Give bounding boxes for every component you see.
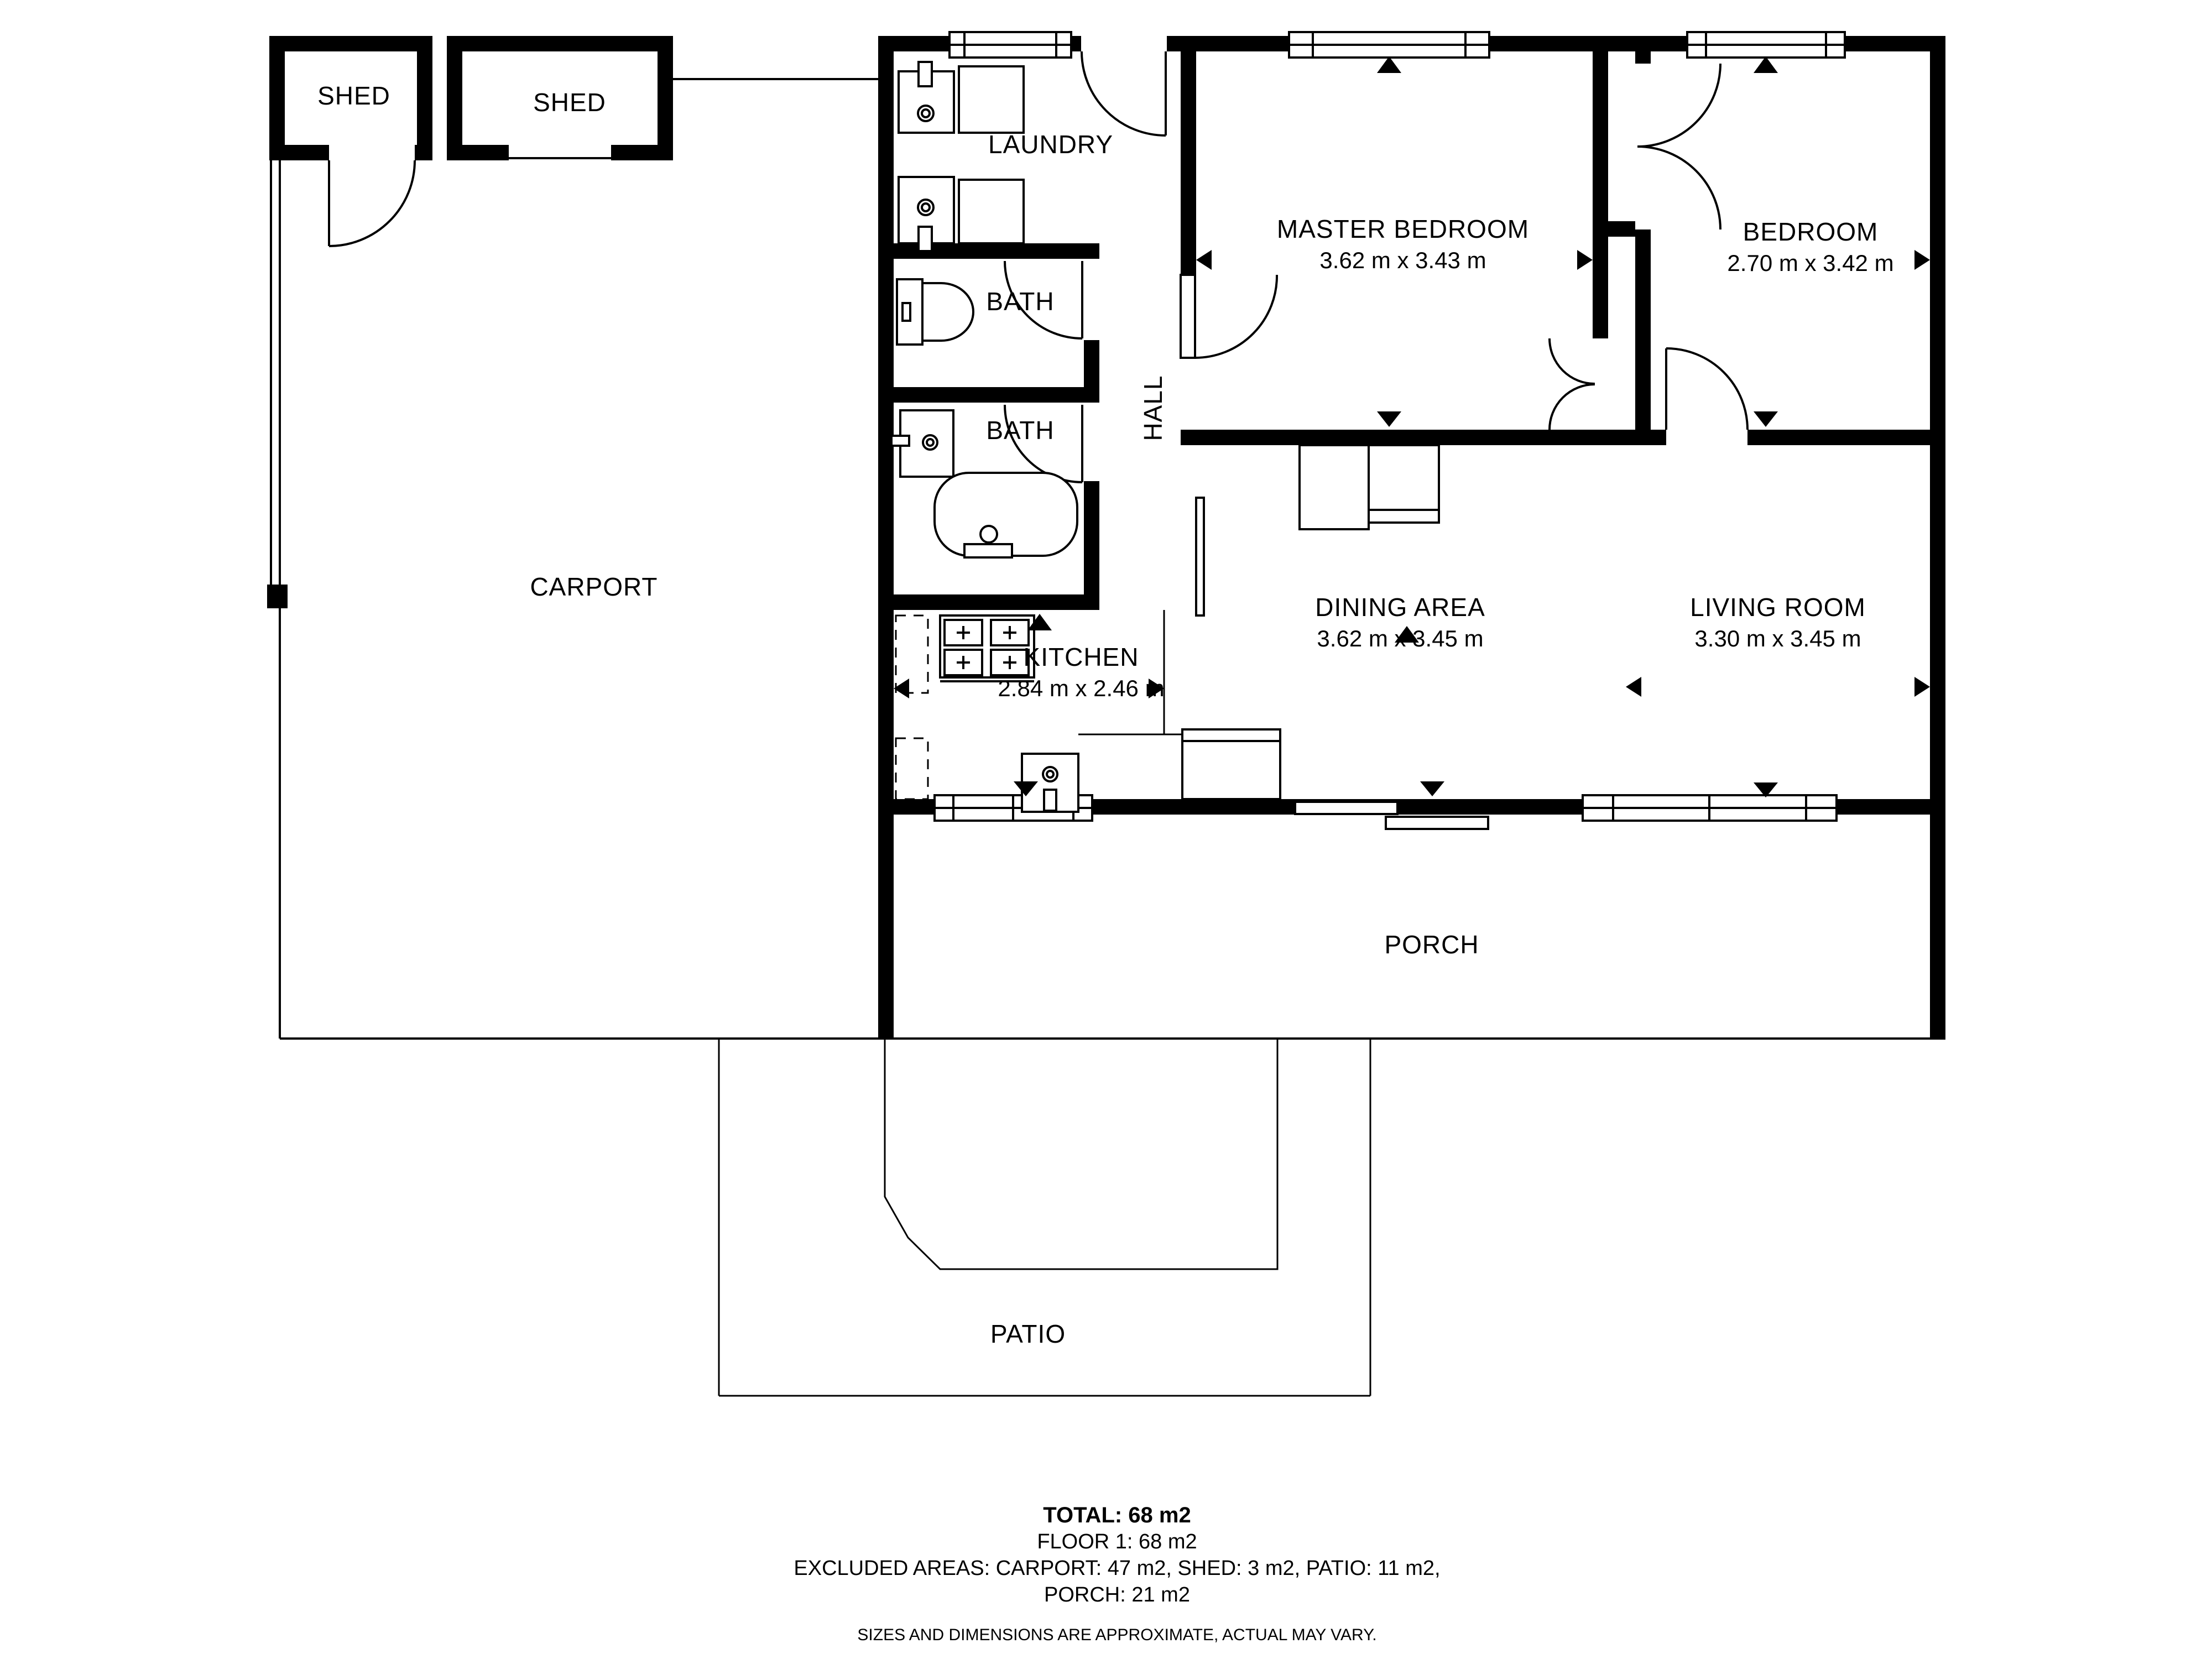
fridge-counter [1182, 729, 1280, 799]
wall-bedrooms-bottom-a [1181, 430, 1666, 445]
arrow-right-bedroom [1914, 250, 1930, 270]
wall-right [1930, 36, 1945, 1040]
label-hall: HALL [1138, 375, 1168, 441]
label-living-room: LIVING ROOM [1690, 592, 1866, 622]
arrow-down-sliding-door [1420, 781, 1444, 796]
label-master-bedroom: MASTER BEDROOM [1277, 214, 1529, 244]
label-carport: CARPORT [530, 572, 658, 602]
summary-total: TOTAL: 68 m2 [680, 1502, 1554, 1528]
shed2-wall-bottom-a [447, 145, 509, 160]
summary-floor: FLOOR 1: 68 m2 [680, 1528, 1554, 1555]
bathtub [935, 473, 1077, 557]
laundry-appliance-1 [959, 66, 1024, 133]
laundry-sink-1 [899, 62, 954, 133]
label-bedroom: BEDROOM [1743, 217, 1879, 247]
kitchen-zone-lines [1078, 610, 1182, 734]
label-shed2: SHED [533, 87, 606, 117]
door-arc-master-closet-lower [1550, 384, 1595, 430]
shed2-wall-bottom-b [611, 145, 673, 160]
dims-kitchen: 2.84 m x 2.46 m [998, 675, 1164, 702]
arrow-left-master [1196, 250, 1212, 270]
door-gap-bedroom [1666, 430, 1747, 445]
arrow-left-living [1626, 677, 1641, 697]
wall-bath2-kitchen [894, 594, 1099, 610]
shed2-wall-right [658, 36, 673, 160]
wall-left [878, 36, 894, 1040]
door-leaf-hall-open [1196, 498, 1204, 615]
disclaimer-text: SIZES AND DIMENSIONS ARE APPROXIMATE, AC… [680, 1626, 1554, 1645]
laundry-appliance-2 [959, 180, 1024, 243]
dims-dining-area: 3.62 m x 3.45 m [1317, 625, 1483, 652]
patio-pad-outline [885, 1040, 1277, 1269]
label-shed1: SHED [317, 81, 390, 111]
wall-bath2-right [1084, 481, 1099, 594]
door-arc-master-closet-upper [1550, 338, 1595, 384]
door-arc-master [1195, 275, 1277, 358]
label-bath2: BATH [986, 415, 1054, 445]
area-summary: TOTAL: 68 m2 FLOOR 1: 68 m2 EXCLUDED ARE… [680, 1502, 1554, 1608]
floor-plan-page: SHED SHED CARPORT LAUNDRY BATH BATH HALL… [0, 0, 2212, 1659]
laundry-sink-2 [899, 177, 954, 251]
label-porch: PORCH [1384, 930, 1479, 959]
door-arc-shed1 [329, 160, 415, 246]
shed1-wall-bottom-b [415, 145, 432, 160]
window-living-room [1583, 795, 1837, 821]
shed2-wall-left [447, 36, 462, 160]
wall-master-right [1593, 51, 1608, 338]
window-master-bedroom [1289, 32, 1489, 58]
dims-master-bedroom: 3.62 m x 3.43 m [1319, 247, 1486, 274]
label-bath1: BATH [986, 286, 1054, 316]
wall-bath1-bath2 [894, 387, 1099, 403]
label-laundry: LAUNDRY [988, 129, 1113, 159]
dims-living-room: 3.30 m x 3.45 m [1694, 625, 1861, 652]
arrow-down-bedroom [1754, 411, 1778, 427]
arrow-down-master [1377, 411, 1401, 427]
wall-hall-master [1181, 51, 1196, 275]
toilet [897, 279, 973, 345]
arrow-left-kitchen [894, 679, 909, 698]
dining-cabinet-1 [1300, 445, 1369, 529]
door-arc-bedroom [1666, 348, 1747, 430]
arrow-right-living [1914, 677, 1930, 697]
door-gap-shed1 [329, 145, 415, 160]
shed1-wall-right [417, 36, 432, 160]
window-laundry [950, 32, 1071, 58]
label-patio: PATIO [990, 1319, 1066, 1349]
door-leaf-master [1181, 275, 1195, 358]
floor-plan-drawing [0, 0, 2212, 1659]
wall-bath1-right [1084, 340, 1099, 387]
arrow-up-bedroom [1754, 56, 1778, 73]
bath2-sink [891, 410, 953, 477]
stove [940, 615, 1034, 681]
window-bedroom [1687, 32, 1845, 58]
summary-excluded-line1: EXCLUDED AREAS: CARPORT: 47 m2, SHED: 3 … [680, 1555, 1554, 1582]
arrow-up-master [1377, 56, 1401, 73]
arrow-right-master [1577, 250, 1593, 270]
shed1-wall-left [269, 36, 285, 160]
shed2-wall-top [447, 36, 673, 51]
shed1-wall-bottom-a [269, 145, 329, 160]
porch-corner-stub-left [878, 1020, 894, 1040]
dims-bedroom: 2.70 m x 3.42 m [1727, 250, 1893, 276]
wall-bedrooms-bottom-b [1747, 430, 1930, 445]
carport-boundary [271, 79, 1945, 1039]
wall-closet-divider [1608, 221, 1635, 237]
porch-corner-stub-right [1930, 1020, 1945, 1040]
label-kitchen: KITCHEN [1024, 642, 1139, 672]
summary-excluded-line2: PORCH: 21 m2 [680, 1582, 1554, 1608]
door-arc-entry [1082, 51, 1166, 135]
dining-cabinet-2 [1369, 445, 1439, 523]
label-dining-area: DINING AREA [1315, 592, 1485, 622]
carport-post [267, 585, 288, 608]
shed1-wall-top [269, 36, 432, 51]
door-gap-master-closet [1593, 338, 1608, 430]
door-gap-entry [1081, 36, 1167, 51]
kitchen-dashed-cabinets [896, 615, 928, 799]
